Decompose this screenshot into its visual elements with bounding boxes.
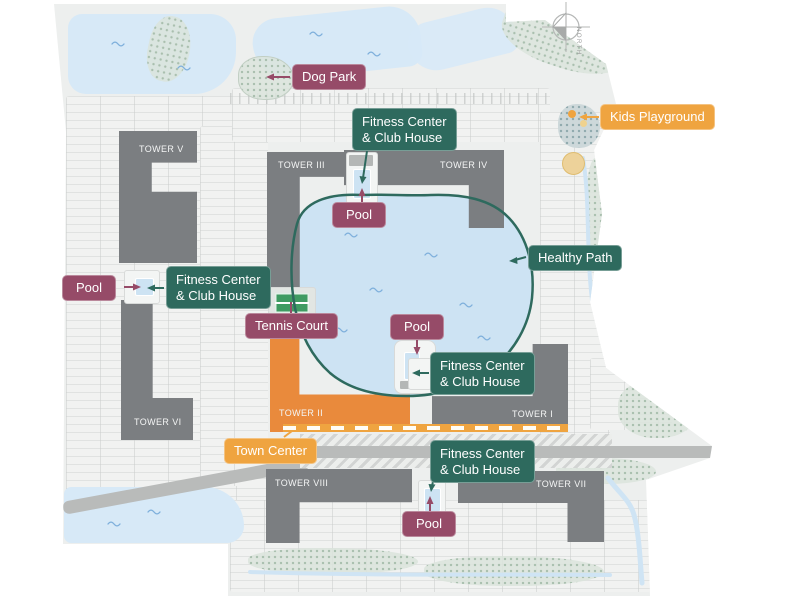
dog-park-badge: Dog Park [292, 64, 366, 90]
kids-playground-badge: Kids Playground [600, 104, 715, 130]
site-plan-map: TOWER V TOWER VI TOWER III TOWER IV TOWE… [0, 0, 800, 600]
compass-rose: NORTH [540, 0, 592, 54]
tower-ii-label: TOWER II [279, 408, 323, 418]
pool-badge-west: Pool [62, 275, 116, 301]
tennis-court-badge: Tennis Court [245, 313, 338, 339]
north-pool-water [353, 169, 371, 199]
fitness-line2: & Club House [362, 130, 447, 146]
fitness-line2: & Club House [440, 462, 525, 478]
trees-bottom-left [248, 548, 418, 574]
north-clubhouse-block [349, 155, 373, 166]
tennis-court-surface [275, 293, 309, 313]
trees-east-bulge [618, 380, 698, 438]
pond-northeast [404, 2, 521, 77]
pool-badge-north: Pool [332, 202, 386, 228]
fitness-line1: Fitness Center [440, 358, 525, 374]
tower-vii-label: TOWER VII [536, 479, 586, 489]
healthy-path-badge: Healthy Path [528, 245, 622, 271]
north-compass: NORTH [540, 0, 592, 54]
map-terrain: TOWER V TOWER VI TOWER III TOWER IV TOWE… [0, 0, 800, 600]
trees-bottom-right [424, 556, 604, 586]
dog-park-area [238, 56, 294, 100]
compass-north-label: NORTH [575, 27, 581, 54]
fitness-line1: Fitness Center [176, 272, 261, 288]
west-pool-water [135, 278, 154, 296]
tower-v-label: TOWER V [139, 144, 184, 154]
fitness-center-badge-center: Fitness Center & Club House [430, 352, 535, 395]
pool-badge-south: Pool [402, 511, 456, 537]
north-clubhouse-pad [346, 152, 378, 204]
fitness-center-badge-west: Fitness Center & Club House [166, 266, 271, 309]
west-clubhouse-pad [124, 270, 160, 304]
fitness-center-badge-north: Fitness Center & Club House [352, 108, 457, 151]
playground-equipment-2 [580, 120, 587, 127]
fitness-line1: Fitness Center [362, 114, 447, 130]
tower-viii-label: TOWER VIII [275, 478, 328, 488]
tower-iii-label: TOWER III [278, 160, 325, 170]
fitness-center-badge-south: Fitness Center & Club House [430, 440, 535, 483]
pool-badge-center: Pool [390, 314, 444, 340]
fitness-line1: Fitness Center [440, 446, 525, 462]
fitness-line2: & Club House [440, 374, 525, 390]
town-center-badge: Town Center [224, 438, 317, 464]
tower-iv-label: TOWER IV [440, 160, 488, 170]
center-clubhouse-pad [408, 358, 432, 390]
roundabout-circle [562, 152, 585, 175]
kids-playground-area [558, 104, 600, 148]
fitness-line2: & Club House [176, 288, 261, 304]
tower-vi-label: TOWER VI [134, 417, 182, 427]
south-pool-water [424, 488, 441, 512]
tower-v-building: TOWER V [119, 131, 197, 263]
tower-i-label: TOWER I [512, 409, 553, 419]
playground-equipment [568, 110, 576, 118]
